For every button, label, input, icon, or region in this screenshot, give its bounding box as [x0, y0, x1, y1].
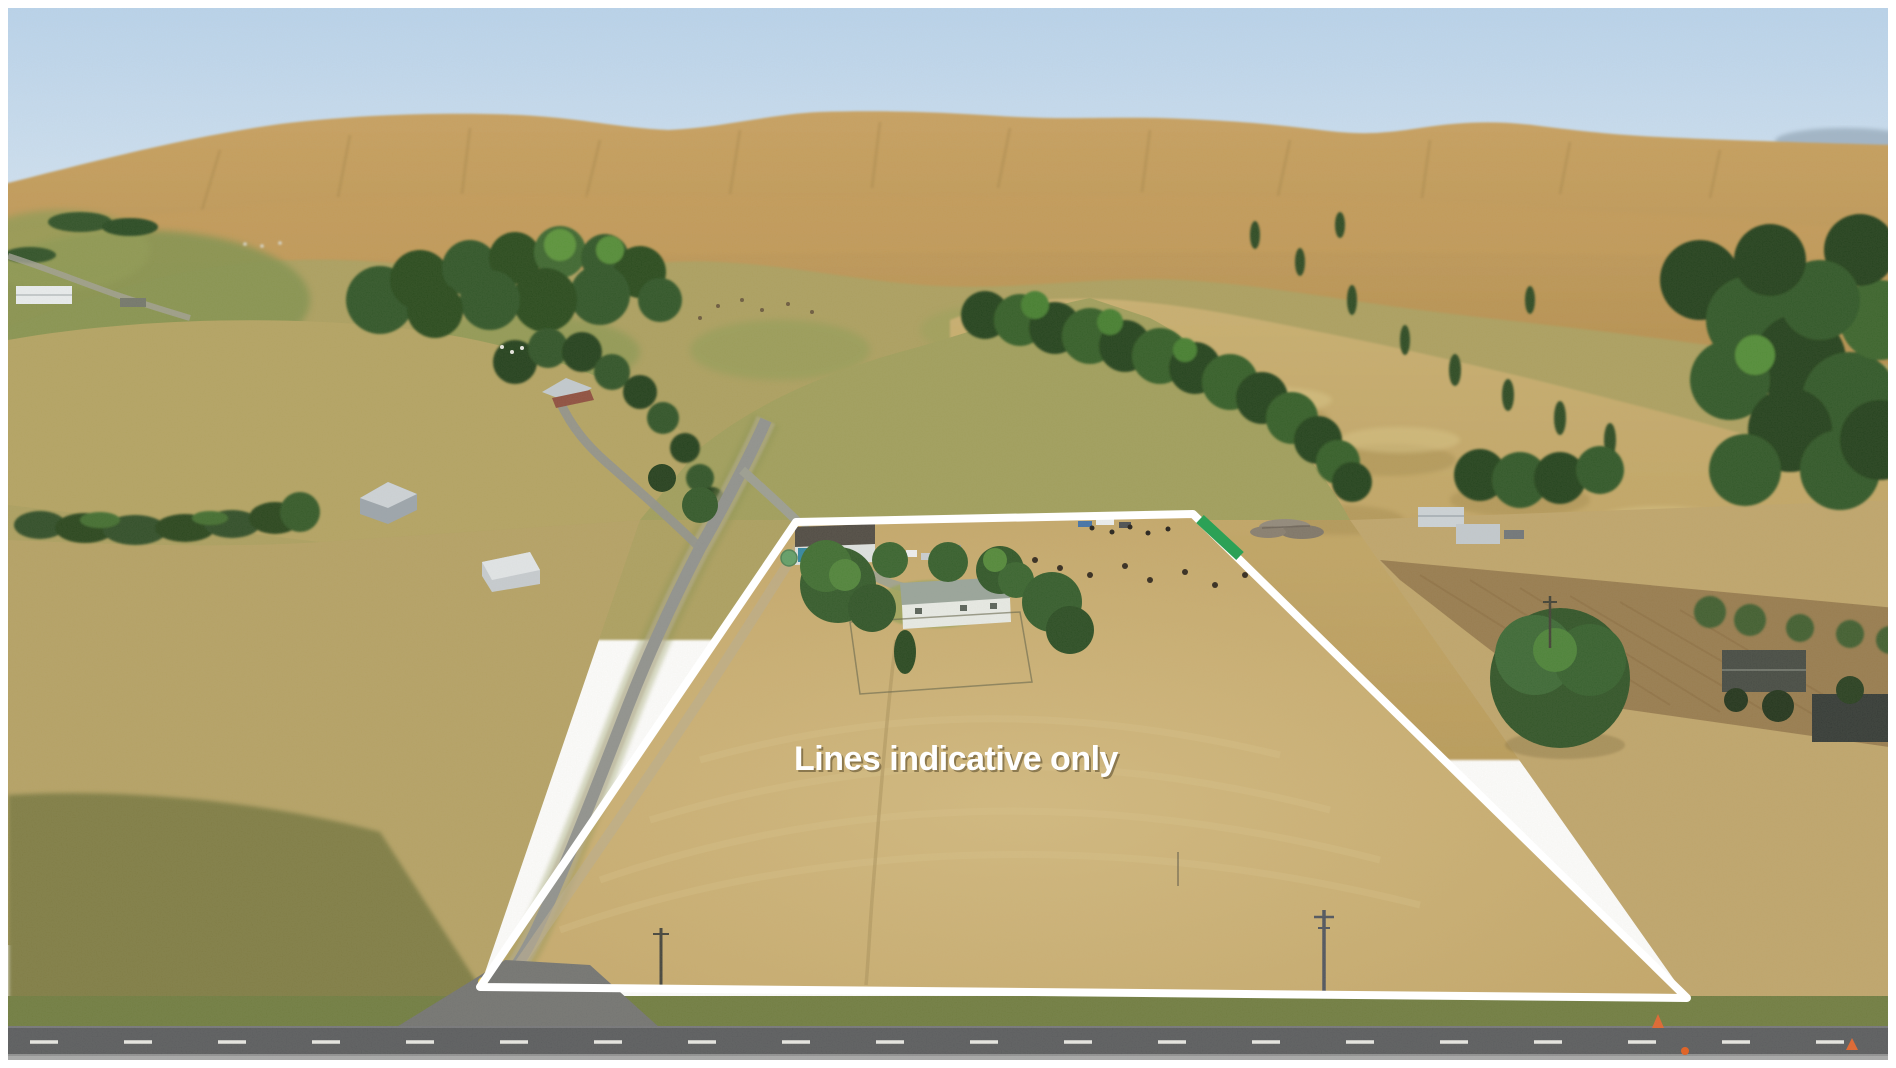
aerial-photo: Lines indicative only Lines indicative o…: [0, 0, 1896, 1068]
caption-text: Lines indicative only: [794, 740, 1119, 778]
photo-grain: [8, 8, 1888, 1060]
